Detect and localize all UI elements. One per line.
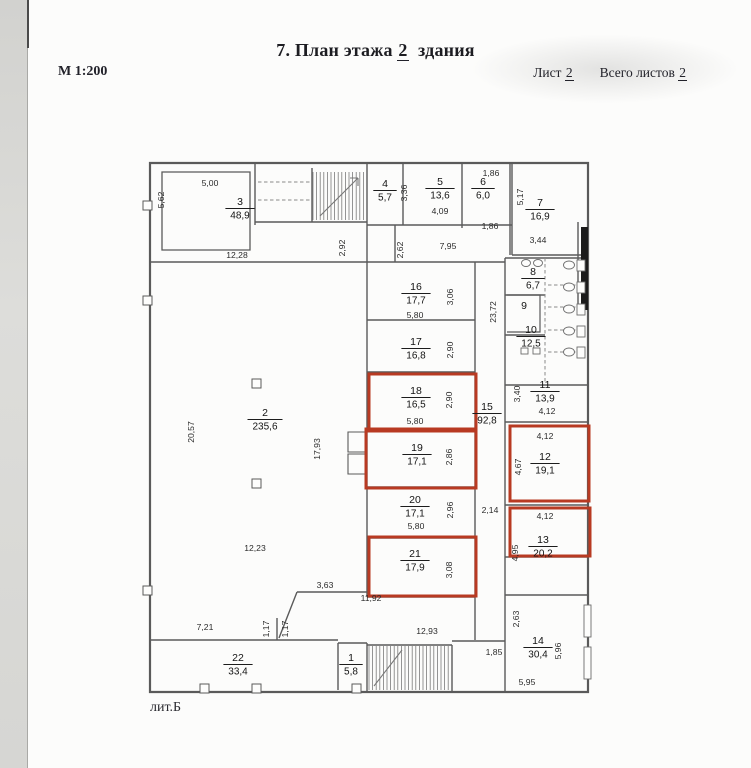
room-number: 22 [232, 652, 244, 664]
dimension-label: 17,93 [312, 438, 322, 460]
room-area: 13,6 [430, 191, 450, 202]
dimension-label: 3,08 [444, 561, 454, 578]
room-number: 9 [521, 300, 527, 312]
building-label: лит.Б [150, 700, 181, 716]
dimension-label: 3,06 [445, 288, 455, 305]
dimension-label: 1,86 [483, 168, 500, 178]
room-number: 8 [530, 266, 536, 278]
highlighted-rooms-layer [366, 374, 590, 596]
dimension-label: 3,63 [317, 580, 334, 590]
room-label-5: 513,6 [425, 176, 454, 202]
room-label-10: 1012,5 [516, 324, 545, 350]
dimension-label: 2,14 [482, 505, 499, 515]
room-number: 13 [537, 534, 549, 546]
room-number: 18 [410, 385, 422, 397]
room-area: 48,9 [230, 211, 250, 222]
dimension-label: 1,17 [261, 620, 271, 637]
room-area: 16,5 [406, 400, 426, 411]
dimension-label: 4,12 [537, 431, 554, 441]
room-number: 7 [537, 197, 543, 209]
room-area: 17,9 [405, 563, 425, 574]
room-area: 17,1 [407, 457, 427, 468]
dimension-label: 2,63 [511, 610, 521, 627]
dimension-label: 7,21 [197, 622, 214, 632]
room-label-4: 45,7 [373, 178, 396, 204]
room-number: 15 [481, 401, 493, 413]
room-label-20: 2017,1 [400, 494, 429, 520]
stairs-top-hatch [313, 172, 363, 220]
dimension-label: 4,95 [510, 544, 520, 561]
columns [143, 201, 361, 693]
room-number: 5 [437, 176, 443, 188]
room-number: 16 [410, 281, 422, 293]
dimension-labels-layer: 5,005,6212,283,361,864,091,865,173,442,9… [156, 168, 563, 687]
room-number: 2 [262, 407, 268, 419]
dimension-label: 12,93 [416, 626, 438, 636]
dimension-label: 5,80 [407, 310, 424, 320]
room-label-14: 1430,4 [523, 635, 552, 661]
room-label-12: 1219,1 [530, 451, 559, 477]
room-label-17: 1716,8 [401, 336, 430, 362]
room-area: 5,8 [344, 667, 358, 678]
dimension-label: 4,12 [539, 406, 556, 416]
room-area: 17,1 [405, 509, 425, 520]
dimension-label: 23,72 [488, 301, 498, 323]
stairs-bottom-hatch [369, 646, 448, 690]
dimension-label: 5,80 [408, 521, 425, 531]
room-label-22: 2233,4 [223, 652, 252, 678]
room-label-19: 1917,1 [402, 442, 431, 468]
toilet-icon [564, 260, 586, 271]
dimension-label: 2,86 [444, 448, 454, 465]
room-number: 20 [409, 494, 421, 506]
room-area: 20,2 [533, 549, 553, 560]
room-number: 17 [410, 336, 422, 348]
document-page: 7. План этажа 2 здания М 1:200 Лист 2Все… [0, 0, 751, 768]
floor-plan-drawing: 15,82235,6348,945,7513,666,0716,986,7910… [0, 0, 751, 768]
room-label-7: 716,9 [525, 197, 554, 223]
room-area: 19,1 [535, 466, 555, 477]
dimension-label: 2,62 [395, 241, 405, 258]
dimension-label: 11,92 [361, 593, 382, 603]
room-number: 10 [525, 324, 537, 336]
room-label-18: 1816,5 [401, 385, 430, 411]
dimension-label: 3,44 [530, 235, 547, 245]
room-area: 5,7 [378, 193, 392, 204]
room-area: 16,8 [406, 351, 426, 362]
dimension-label: 5,00 [202, 178, 219, 188]
toilet-icon [564, 304, 586, 315]
toilet-icon [564, 326, 586, 337]
bottom-walls [150, 592, 505, 692]
room-area: 235,6 [252, 422, 277, 433]
toilet-icon [564, 347, 586, 358]
dimension-label: 2,90 [444, 391, 454, 408]
dimension-label: 1,85 [486, 647, 503, 657]
room-area: 13,9 [535, 394, 555, 405]
room-label-8: 86,7 [521, 266, 544, 292]
dimension-label: 5,17 [515, 188, 525, 205]
dimension-label: 4,67 [513, 458, 523, 475]
dimension-label: 2,90 [445, 341, 455, 358]
room-number: 3 [237, 196, 243, 208]
dimension-label: 3,36 [399, 184, 409, 201]
room-number: 11 [540, 379, 551, 391]
room-label-21: 2117,9 [400, 548, 429, 574]
room-label-2: 2235,6 [248, 407, 283, 433]
room-label-16: 1617,7 [401, 281, 430, 307]
room-number: 4 [382, 178, 388, 190]
dimension-label: 2,96 [445, 501, 455, 518]
shaft-boxes [348, 432, 366, 474]
dimension-label: 7,95 [440, 241, 457, 251]
room-area: 16,9 [530, 212, 550, 223]
room-area: 6,7 [526, 281, 540, 292]
dimension-label: 12,23 [244, 543, 266, 553]
room-area: 92,8 [477, 416, 497, 427]
dimension-label: 1,17 [280, 620, 290, 637]
room-label-11: 1113,9 [530, 379, 559, 405]
dimension-label: 3,40 [512, 385, 522, 402]
room-area: 17,7 [406, 296, 426, 307]
room-label-1: 15,8 [339, 652, 362, 678]
room-label-9: 9 [521, 300, 527, 312]
dimension-label: 4,09 [432, 206, 449, 216]
dimension-label: 5,96 [553, 642, 563, 659]
room-number: 14 [532, 635, 544, 647]
dimension-label: 5,62 [156, 191, 166, 208]
dimension-label: 5,95 [519, 677, 536, 687]
dimension-label: 12,28 [226, 250, 248, 260]
dimension-label: 1,86 [482, 221, 499, 231]
room-area: 12,5 [521, 339, 541, 350]
room-number: 12 [539, 451, 551, 463]
room-area: 6,0 [476, 191, 490, 202]
room-area: 33,4 [228, 667, 248, 678]
room-number: 19 [411, 442, 423, 454]
room-number: 1 [348, 652, 354, 664]
room-number: 21 [409, 548, 421, 560]
dimension-label: 4,12 [537, 511, 554, 521]
dimension-label: 5,80 [407, 416, 424, 426]
room-area: 30,4 [528, 650, 548, 661]
room-label-6: 66,0 [471, 176, 494, 202]
dimension-label: 20,57 [186, 421, 196, 443]
toilet-icon [564, 282, 586, 293]
dimension-label: 2,92 [337, 239, 347, 256]
